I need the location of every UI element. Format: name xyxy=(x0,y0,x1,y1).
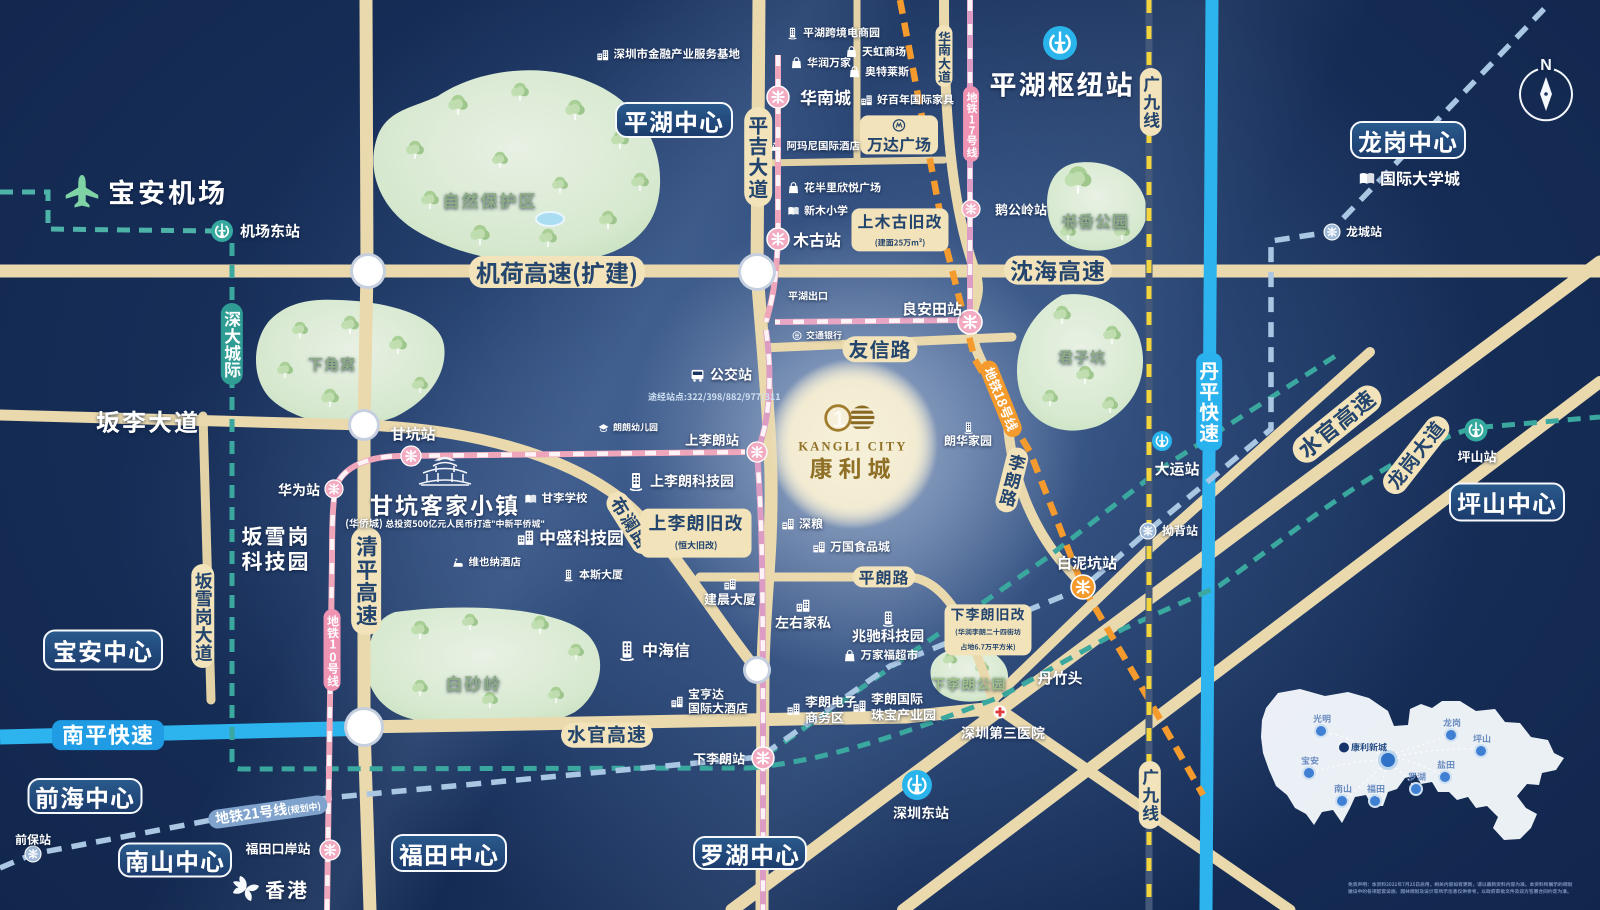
svg-text:1: 1 xyxy=(833,406,846,432)
